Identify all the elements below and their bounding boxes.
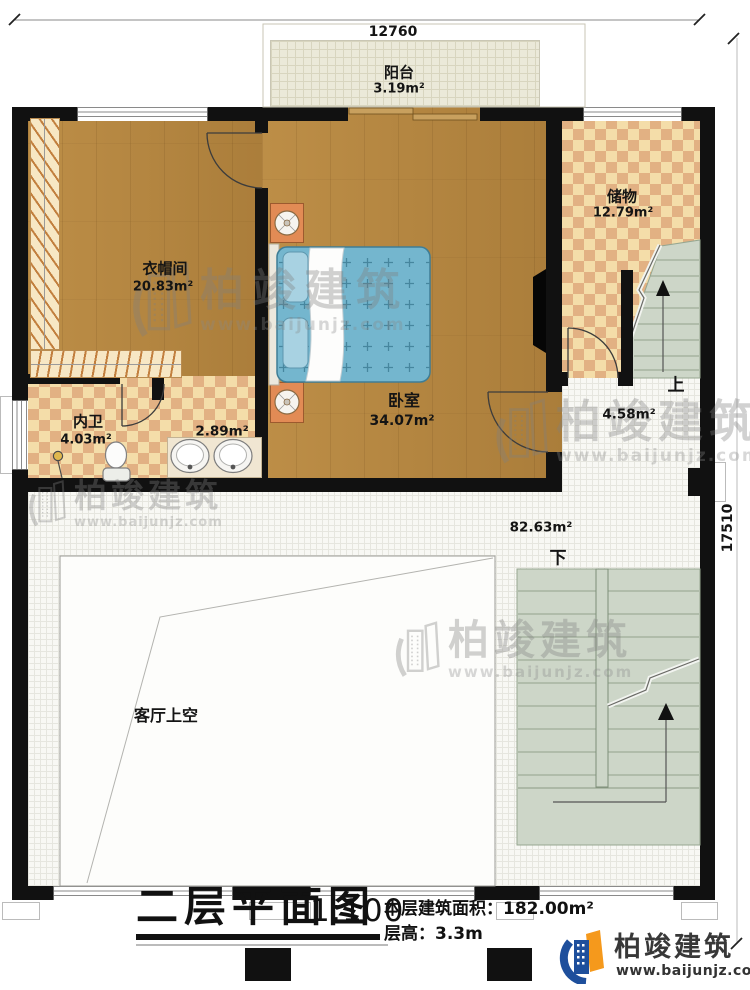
window <box>583 107 682 121</box>
room-label-balcony: 阳台 <box>384 66 414 81</box>
wall <box>562 372 568 386</box>
column-marker <box>245 948 291 981</box>
brand-name: 柏竣建筑 <box>614 934 734 961</box>
room-label-bathroom: 内卫 <box>73 415 103 430</box>
wall <box>700 107 715 900</box>
room-area-stair-hall: 4.58m² <box>602 408 655 422</box>
dimension-right: 17510 <box>721 504 735 553</box>
wardrobe <box>30 118 60 350</box>
room-area-bathroom: 4.03m² <box>60 434 111 447</box>
floor-plan-canvas: 12760 17510 阳台 3.19m² 储物 12.79m² 衣帽间 20.… <box>0 0 750 990</box>
storage-floor <box>562 107 700 386</box>
brand-logo-icon <box>556 928 614 984</box>
floor-height-line: 层高：3.3m <box>384 926 483 943</box>
room-area-wash: 2.89m² <box>195 425 248 439</box>
nightstand <box>270 382 304 423</box>
nightstand <box>270 203 304 243</box>
washbasin-counter <box>167 437 262 478</box>
window <box>12 400 28 470</box>
wall <box>674 886 715 900</box>
wall <box>546 107 562 392</box>
column-marker <box>487 948 532 981</box>
wall <box>546 452 562 492</box>
brand-website: www.baijunjz.com, <box>616 964 750 978</box>
cloakroom-floor <box>28 107 268 378</box>
bedroom-floor <box>262 107 562 492</box>
title-underline <box>136 934 380 940</box>
wall <box>208 107 348 121</box>
wall <box>255 188 268 478</box>
room-area-hall: 82.63m² <box>510 521 573 535</box>
window-sill <box>2 902 40 920</box>
floor-area-label: 本层建筑面积： <box>384 899 503 919</box>
room-label-cloakroom: 衣帽间 <box>142 262 187 277</box>
stair-up-label: 上 <box>668 378 685 395</box>
room-label-living-void: 客厅上空 <box>134 708 198 724</box>
window <box>539 886 674 900</box>
floor-area-line: 本层建筑面积：182.00m² <box>384 901 594 918</box>
wall <box>255 107 268 133</box>
room-area-cloakroom: 20.83m² <box>133 281 193 294</box>
floor-height-value: 3.3m <box>435 924 483 944</box>
wall <box>12 470 28 900</box>
wardrobe <box>30 350 182 378</box>
hall-floor <box>28 492 700 886</box>
room-area-balcony: 3.19m² <box>373 83 424 96</box>
wall <box>12 107 28 400</box>
room-area-storage: 12.79m² <box>593 207 653 220</box>
wall <box>12 886 53 900</box>
window-sill <box>681 902 718 920</box>
title-underline-thin <box>136 944 388 946</box>
wall <box>618 372 633 386</box>
room-area-bedroom: 34.07m² <box>369 414 434 428</box>
window <box>77 107 208 121</box>
wall <box>480 107 583 121</box>
floor-area-value: 182.00m² <box>503 899 594 919</box>
dimension-top: 12760 <box>369 25 418 39</box>
room-label-storage: 储物 <box>607 190 637 205</box>
wall <box>475 886 539 900</box>
wall-pier <box>688 468 700 496</box>
stair-down-label: 下 <box>550 551 567 568</box>
room-label-bedroom: 卧室 <box>388 393 420 409</box>
floor-height-label: 层高： <box>384 924 435 944</box>
wall <box>12 478 562 492</box>
